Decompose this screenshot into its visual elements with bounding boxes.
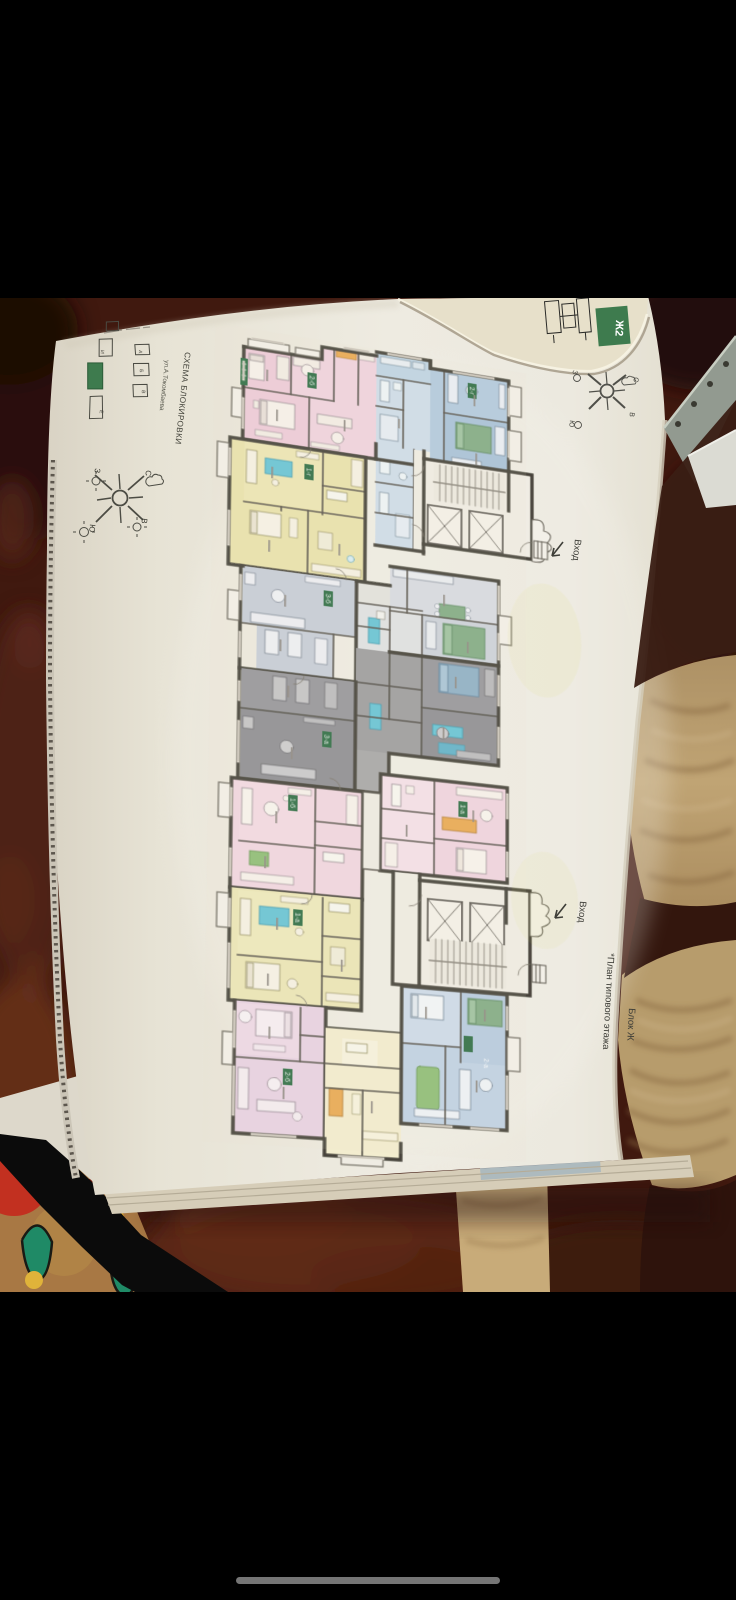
svg-text:Блок Ж: Блок Ж [624, 1008, 637, 1041]
svg-text:ул.А.Токомбаева: ул.А.Токомбаева [158, 360, 171, 412]
svg-text:В: В [140, 390, 146, 395]
svg-text:Вход: Вход [570, 539, 583, 562]
svg-text:В: В [139, 518, 149, 524]
svg-text:Ю: Ю [567, 420, 575, 428]
svg-text:З: З [92, 468, 101, 474]
svg-text:Вход: Вход [575, 901, 588, 924]
svg-text:А: А [137, 350, 143, 355]
svg-text:В: В [627, 412, 634, 418]
svg-text:Б: Б [138, 369, 144, 374]
svg-text:*План типового этажа: *План типового этажа [600, 953, 616, 1051]
svg-text:СХЕМА БЛОКИРОВКИ: СХЕМА БЛОКИРОВКИ [173, 352, 192, 445]
svg-text:З: З [571, 370, 578, 375]
svg-text:С: С [143, 470, 153, 477]
